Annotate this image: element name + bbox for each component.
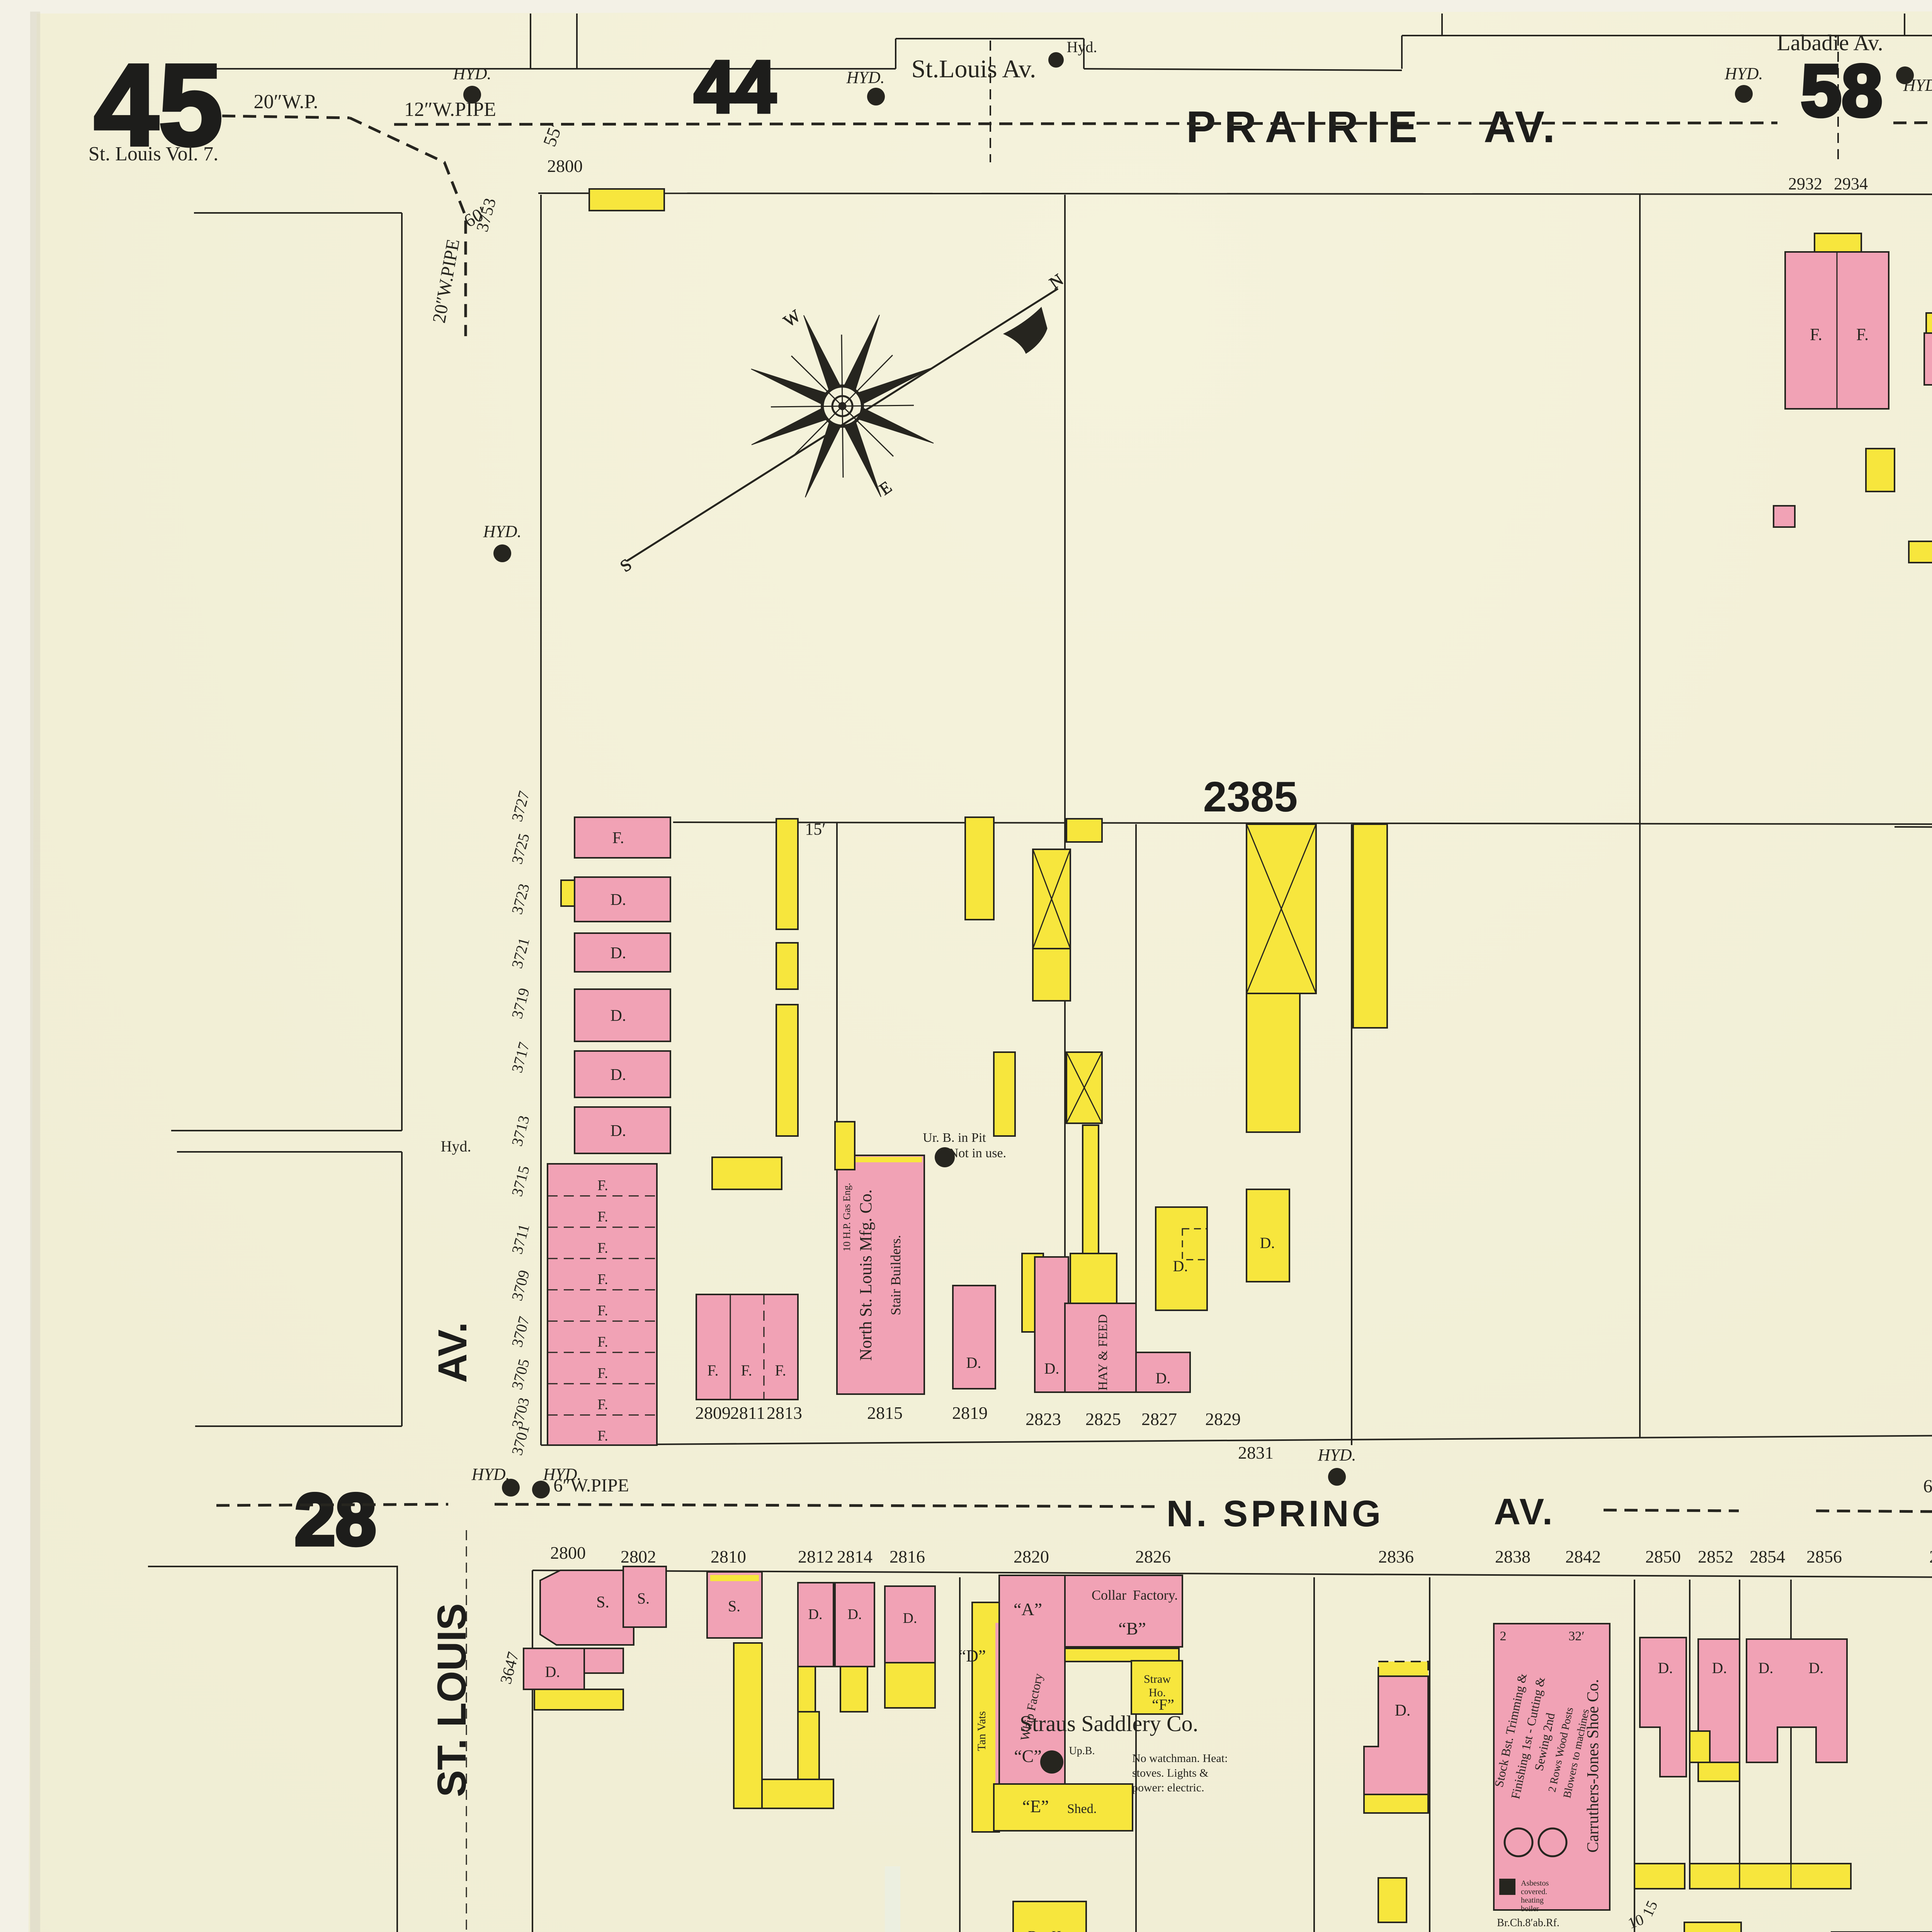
svg-text:D.: D.: [1044, 1360, 1060, 1377]
svg-text:PRAIRIE: PRAIRIE: [1186, 102, 1426, 152]
svg-text:heating: heating: [1521, 1896, 1544, 1905]
svg-text:Labadie Av.: Labadie Av.: [1777, 30, 1883, 55]
svg-text:S.: S.: [596, 1594, 609, 1611]
svg-text:Br.Ch.8′ab.Rf.: Br.Ch.8′ab.Rf.: [1497, 1917, 1560, 1929]
svg-text:2823: 2823: [1026, 1409, 1061, 1429]
svg-text:D.: D.: [611, 944, 626, 962]
svg-text:D.: D.: [903, 1610, 917, 1626]
svg-text:AV.: AV.: [1484, 102, 1558, 152]
svg-text:ST. LOUIS: ST. LOUIS: [429, 1603, 474, 1797]
svg-text:Up.B.: Up.B.: [1069, 1745, 1095, 1757]
svg-text:F.: F.: [597, 1240, 608, 1256]
svg-text:2819: 2819: [952, 1403, 988, 1423]
svg-text:2802: 2802: [621, 1547, 656, 1566]
svg-text:2831: 2831: [1238, 1443, 1274, 1463]
svg-text:Tan Vats: Tan Vats: [975, 1711, 988, 1751]
svg-text:F.: F.: [707, 1362, 718, 1379]
svg-text:AV.: AV.: [1494, 1491, 1554, 1532]
svg-text:Shed.: Shed.: [1067, 1802, 1097, 1816]
svg-text:“B”: “B”: [1118, 1619, 1146, 1638]
svg-text:F.: F.: [741, 1362, 752, 1379]
svg-text:2827: 2827: [1141, 1409, 1177, 1429]
svg-text:boiler: boiler: [1521, 1905, 1539, 1913]
svg-text:44: 44: [694, 46, 776, 128]
svg-text:D.: D.: [611, 1007, 626, 1025]
svg-text:58: 58: [1801, 50, 1882, 132]
svg-text:2815: 2815: [867, 1403, 903, 1423]
svg-text:10 H.P. Gas Eng.: 10 H.P. Gas Eng.: [841, 1183, 852, 1252]
svg-text:HYD.: HYD.: [1724, 64, 1763, 83]
svg-text:S.: S.: [637, 1590, 650, 1607]
svg-text:F.: F.: [597, 1177, 608, 1194]
svg-text:6″W.PIPE: 6″W.PIPE: [1923, 1476, 1932, 1497]
svg-text:D.: D.: [1173, 1257, 1188, 1275]
svg-text:North St. Louis Mfg. Co.: North St. Louis Mfg. Co.: [856, 1189, 875, 1361]
svg-text:2854: 2854: [1750, 1547, 1785, 1566]
svg-text:D.: D.: [611, 1066, 626, 1084]
svg-text:Stair Builders.: Stair Builders.: [888, 1235, 903, 1315]
svg-text:covered.: covered.: [1521, 1888, 1547, 1896]
svg-text:2809: 2809: [695, 1403, 731, 1423]
svg-text:Factory.: Factory.: [1133, 1587, 1178, 1603]
svg-text:F.: F.: [597, 1209, 608, 1225]
svg-text:D.: D.: [1712, 1659, 1727, 1677]
svg-text:HYD.: HYD.: [1317, 1446, 1356, 1464]
svg-text:HYD.: HYD.: [543, 1465, 581, 1484]
svg-text:2812: 2812: [798, 1547, 833, 1566]
svg-text:2826: 2826: [1135, 1547, 1171, 1566]
svg-text:No watchman. Heat:: No watchman. Heat:: [1132, 1752, 1228, 1765]
svg-text:F.: F.: [612, 829, 624, 847]
svg-text:D.: D.: [966, 1354, 981, 1371]
svg-text:2385: 2385: [1203, 773, 1298, 821]
svg-text:2836: 2836: [1378, 1547, 1414, 1566]
svg-text:HYD.: HYD.: [846, 68, 884, 87]
svg-text:D.: D.: [848, 1606, 862, 1622]
svg-text:2820: 2820: [1014, 1547, 1049, 1566]
svg-text:St. Louis Vol. 7.: St. Louis Vol. 7.: [88, 143, 218, 165]
svg-text:F.: F.: [597, 1271, 608, 1287]
svg-text:Ur. B. in Pit: Ur. B. in Pit: [923, 1131, 986, 1145]
svg-text:F.: F.: [1810, 325, 1822, 344]
svg-text:HYD.: HYD.: [1903, 76, 1932, 95]
svg-text:2860: 2860: [1929, 1547, 1932, 1566]
svg-text:F.: F.: [597, 1303, 608, 1319]
svg-text:Straw: Straw: [1144, 1673, 1171, 1685]
svg-text:15′: 15′: [805, 820, 826, 838]
svg-text:2934: 2934: [1834, 174, 1868, 193]
svg-text:“E”: “E”: [1022, 1796, 1049, 1816]
svg-text:“C”: “C”: [1014, 1746, 1042, 1766]
svg-text:D.: D.: [545, 1663, 560, 1680]
svg-text:28: 28: [294, 1479, 376, 1561]
svg-text:2825: 2825: [1085, 1409, 1121, 1429]
svg-text:2850: 2850: [1645, 1547, 1681, 1566]
svg-text:Hyd.: Hyd.: [1067, 38, 1097, 56]
svg-text:D.: D.: [1395, 1702, 1411, 1719]
svg-text:HAY & FEED: HAY & FEED: [1096, 1314, 1110, 1391]
svg-text:F.: F.: [597, 1396, 608, 1413]
svg-text:2816: 2816: [889, 1547, 925, 1566]
svg-text:Not in use.: Not in use.: [949, 1146, 1006, 1160]
svg-text:D.: D.: [1260, 1234, 1275, 1252]
svg-text:D.: D.: [1809, 1659, 1824, 1677]
svg-text:F.: F.: [597, 1365, 608, 1381]
svg-text:“D”: “D”: [959, 1646, 986, 1665]
svg-text:2800: 2800: [550, 1543, 586, 1563]
svg-text:2852: 2852: [1698, 1547, 1733, 1566]
svg-text:12″W.PIPE: 12″W.PIPE: [404, 99, 496, 121]
svg-text:2838: 2838: [1495, 1547, 1531, 1566]
svg-text:D.: D.: [1156, 1369, 1171, 1387]
svg-text:D.: D.: [808, 1606, 823, 1622]
svg-text:Hyd.: Hyd.: [441, 1138, 471, 1155]
svg-text:Straus Saddlery Co.: Straus Saddlery Co.: [1020, 1711, 1198, 1736]
svg-text:F.: F.: [597, 1334, 608, 1350]
svg-text:HYD.: HYD.: [483, 522, 521, 541]
svg-text:2829: 2829: [1205, 1409, 1241, 1429]
svg-text:2814: 2814: [837, 1547, 872, 1566]
svg-text:2932: 2932: [1788, 174, 1822, 193]
svg-text:D.: D.: [611, 891, 626, 909]
svg-text:2813: 2813: [767, 1403, 802, 1423]
svg-text:“A”: “A”: [1014, 1599, 1042, 1619]
svg-text:St.Louis Av.: St.Louis Av.: [912, 55, 1036, 83]
svg-text:power: electric.: power: electric.: [1132, 1781, 1204, 1794]
svg-text:2811: 2811: [730, 1403, 765, 1423]
svg-text:2856: 2856: [1806, 1547, 1842, 1566]
svg-text:2810: 2810: [711, 1547, 746, 1566]
svg-text:N. SPRING: N. SPRING: [1167, 1493, 1384, 1534]
svg-text:HYD.: HYD.: [452, 64, 491, 83]
svg-text:F.: F.: [775, 1362, 786, 1379]
svg-text:F.: F.: [597, 1428, 608, 1444]
svg-text:32′: 32′: [1568, 1629, 1584, 1643]
svg-text:2: 2: [1500, 1629, 1507, 1643]
svg-text:2800: 2800: [547, 156, 583, 176]
svg-text:stoves. Lights &: stoves. Lights &: [1132, 1767, 1209, 1779]
svg-text:Asbestos: Asbestos: [1521, 1879, 1549, 1888]
svg-text:HYD.: HYD.: [471, 1465, 510, 1484]
svg-text:Carruthers-Jones Shoe Co.: Carruthers-Jones Shoe Co.: [1584, 1679, 1602, 1852]
svg-text:D.: D.: [1658, 1659, 1673, 1677]
svg-text:2842: 2842: [1565, 1547, 1601, 1566]
svg-text:Collar: Collar: [1092, 1587, 1126, 1603]
svg-text:20″W.P.: 20″W.P.: [253, 91, 318, 113]
svg-text:S.: S.: [728, 1597, 740, 1615]
svg-text:AV.: AV.: [430, 1322, 475, 1383]
svg-text:D.: D.: [611, 1122, 626, 1140]
svg-text:F.: F.: [1856, 325, 1869, 344]
svg-text:D.: D.: [1759, 1659, 1774, 1677]
svg-text:Dry Ho.: Dry Ho.: [1028, 1929, 1071, 1932]
